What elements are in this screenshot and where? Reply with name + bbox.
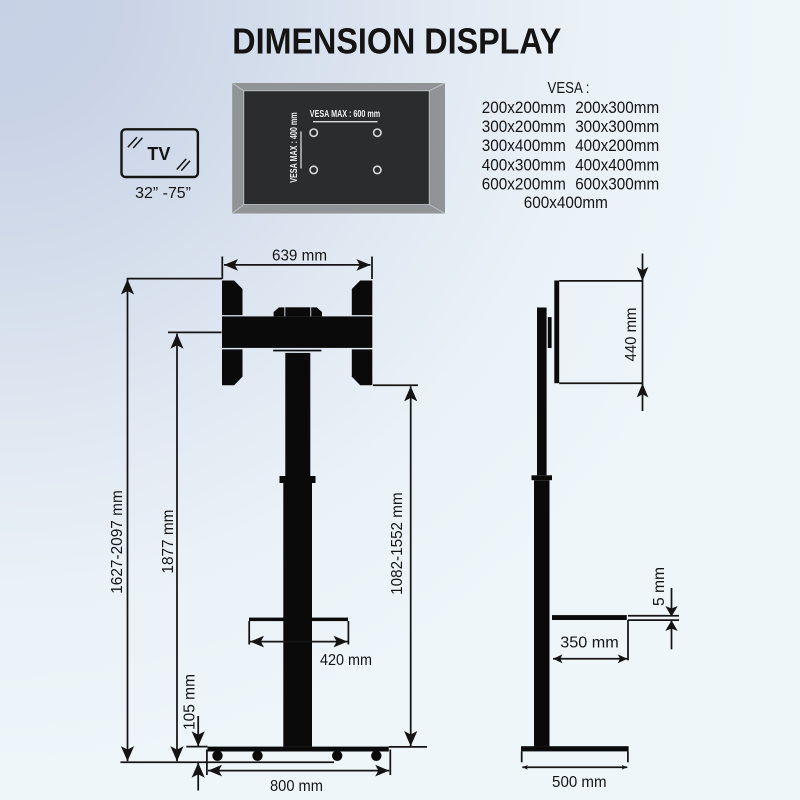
svg-text:600x400mm: 600x400mm xyxy=(524,193,608,212)
svg-text:5 mm: 5 mm xyxy=(651,567,668,606)
svg-text:VESA :: VESA : xyxy=(548,80,590,97)
svg-text:VESA MAX : 400 mm: VESA MAX : 400 mm xyxy=(289,112,300,183)
svg-text:300x300mm: 300x300mm xyxy=(575,117,659,136)
svg-text:200x200mm: 200x200mm xyxy=(482,98,566,117)
svg-text:440 mm: 440 mm xyxy=(623,308,640,362)
svg-text:DIMENSION DISPLAY: DIMENSION DISPLAY xyxy=(232,21,561,62)
svg-text:600x300mm: 600x300mm xyxy=(575,174,659,193)
svg-text:TV: TV xyxy=(147,144,170,164)
svg-text:1082-1552 mm: 1082-1552 mm xyxy=(389,492,406,595)
svg-text:300x400mm: 300x400mm xyxy=(482,136,566,155)
svg-text:105 mm: 105 mm xyxy=(181,674,198,730)
svg-text:1877 mm: 1877 mm xyxy=(160,510,177,574)
svg-text:350 mm: 350 mm xyxy=(560,635,619,652)
svg-text:639 mm: 639 mm xyxy=(272,247,327,264)
svg-text:300x200mm: 300x200mm xyxy=(482,117,566,136)
svg-text:420 mm: 420 mm xyxy=(320,652,372,669)
svg-text:1627-2097 mm: 1627-2097 mm xyxy=(109,490,126,594)
svg-text:VESA MAX : 600 mm: VESA MAX : 600 mm xyxy=(310,109,381,120)
svg-text:400x300mm: 400x300mm xyxy=(482,155,566,174)
svg-text:800 mm: 800 mm xyxy=(270,778,323,795)
svg-text:400x200mm: 400x200mm xyxy=(575,136,659,155)
svg-text:600x200mm: 600x200mm xyxy=(482,174,566,193)
svg-text:32” -75”: 32” -75” xyxy=(135,185,191,202)
svg-text:400x400mm: 400x400mm xyxy=(575,155,659,174)
svg-text:200x300mm: 200x300mm xyxy=(575,98,659,117)
svg-text:500 mm: 500 mm xyxy=(552,774,607,791)
